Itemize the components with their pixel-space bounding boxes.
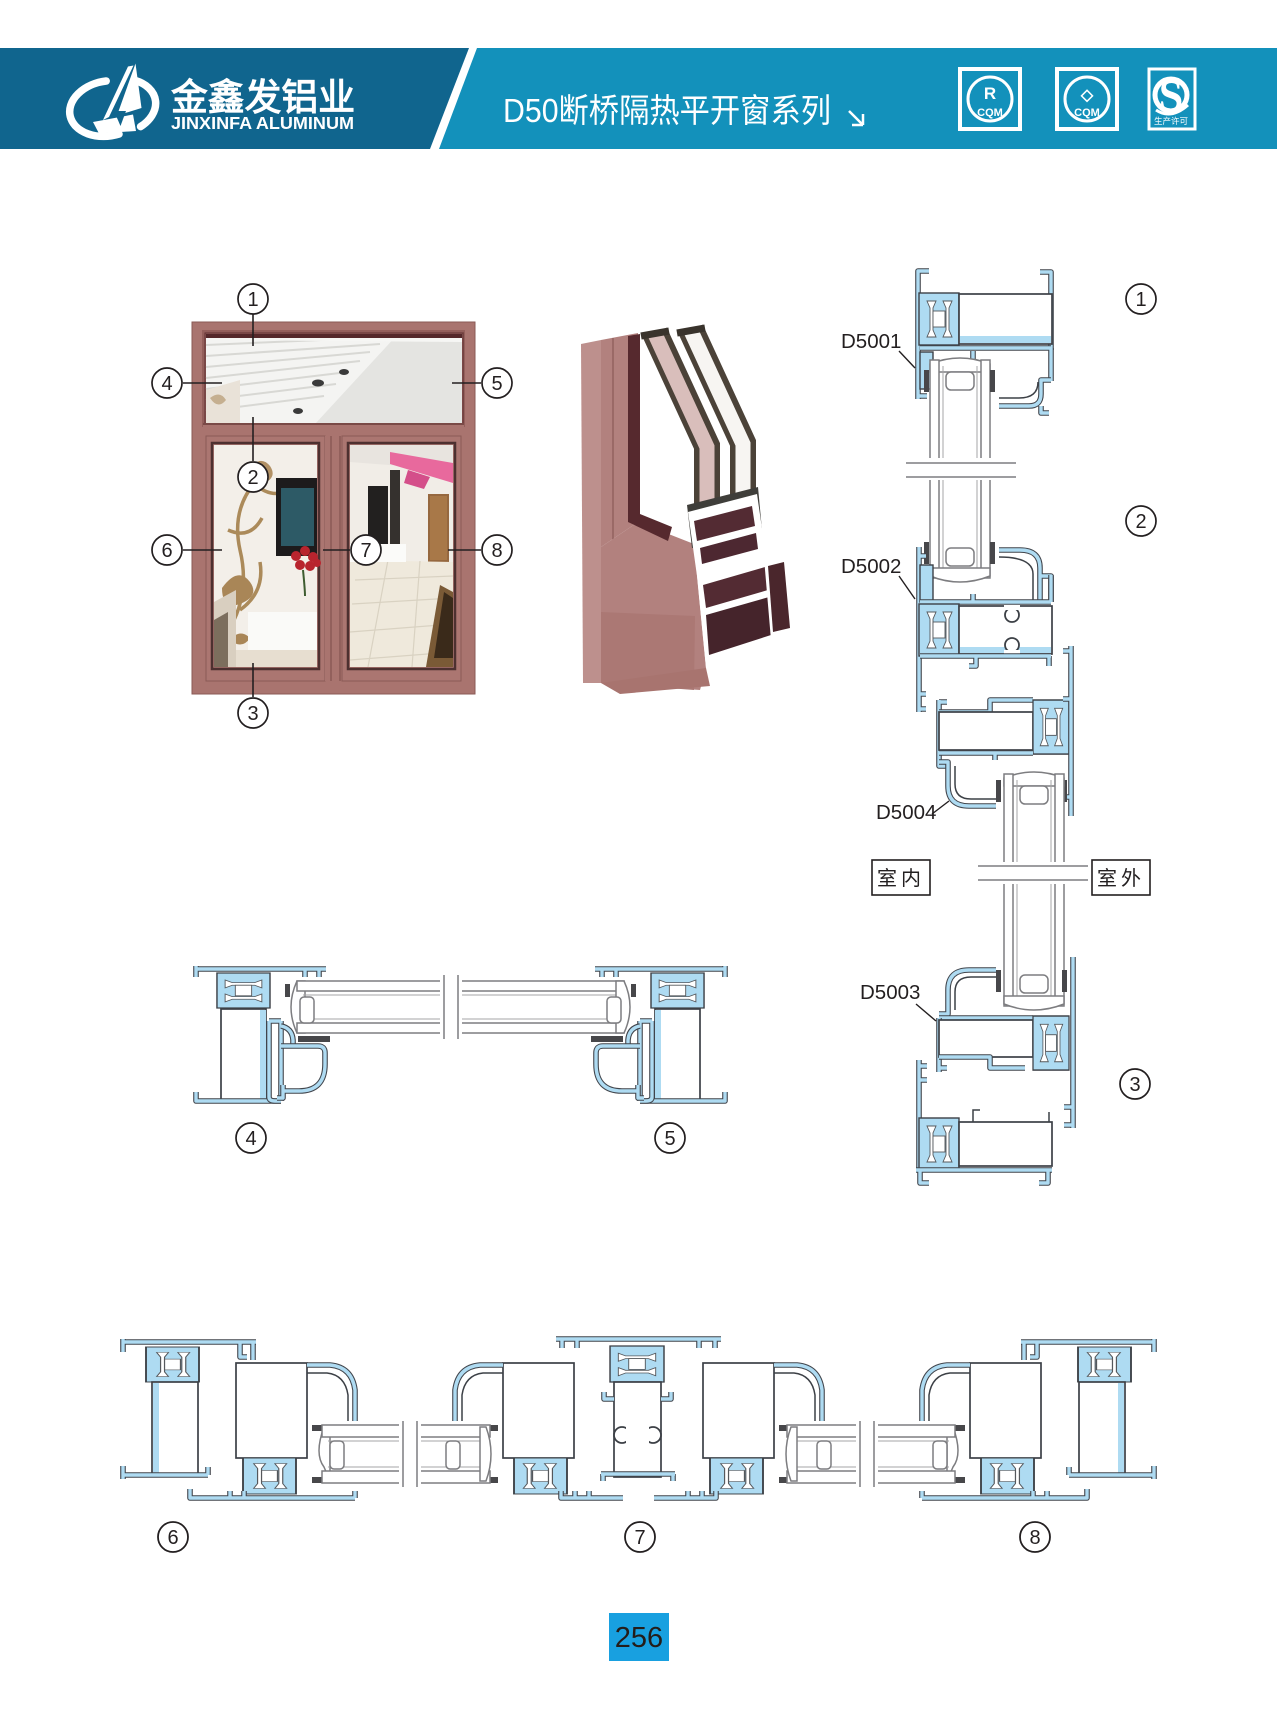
svg-text:D5003: D5003 — [860, 981, 920, 1004]
svg-text:7: 7 — [360, 540, 371, 562]
svg-text:1: 1 — [1135, 289, 1146, 311]
svg-text:生产许可: 生产许可 — [1154, 116, 1189, 126]
svg-text:R: R — [984, 84, 996, 103]
svg-text:7: 7 — [634, 1527, 645, 1549]
svg-text:金鑫发铝业: 金鑫发铝业 — [171, 76, 355, 118]
svg-text:D5001: D5001 — [841, 330, 901, 353]
svg-text:2: 2 — [1135, 511, 1146, 533]
svg-text:5: 5 — [664, 1128, 675, 1150]
svg-text:CQM: CQM — [977, 107, 1003, 119]
svg-text:2: 2 — [247, 467, 258, 489]
svg-text:6: 6 — [161, 540, 172, 562]
svg-text:◇: ◇ — [1080, 87, 1094, 104]
svg-text:S: S — [1159, 71, 1183, 120]
svg-text:3: 3 — [247, 703, 258, 725]
svg-text:CQM: CQM — [1074, 107, 1100, 119]
svg-text:5: 5 — [491, 373, 502, 395]
svg-text:4: 4 — [161, 373, 172, 395]
svg-text:4: 4 — [245, 1128, 256, 1150]
svg-text:D50断桥隔热平开窗系列: D50断桥隔热平开窗系列 — [503, 92, 831, 129]
svg-text:JINXINFA ALUMINUM: JINXINFA ALUMINUM — [171, 113, 354, 133]
svg-text:1: 1 — [247, 289, 258, 311]
svg-text:256: 256 — [615, 1622, 663, 1654]
svg-text:D5002: D5002 — [841, 555, 901, 578]
svg-text:6: 6 — [167, 1527, 178, 1549]
svg-text:3: 3 — [1129, 1074, 1140, 1096]
svg-text:室外: 室外 — [1097, 867, 1145, 890]
svg-text:D5004: D5004 — [876, 801, 936, 824]
svg-text:8: 8 — [491, 540, 502, 562]
svg-text:8: 8 — [1029, 1527, 1040, 1549]
svg-text:室内: 室内 — [877, 867, 925, 890]
